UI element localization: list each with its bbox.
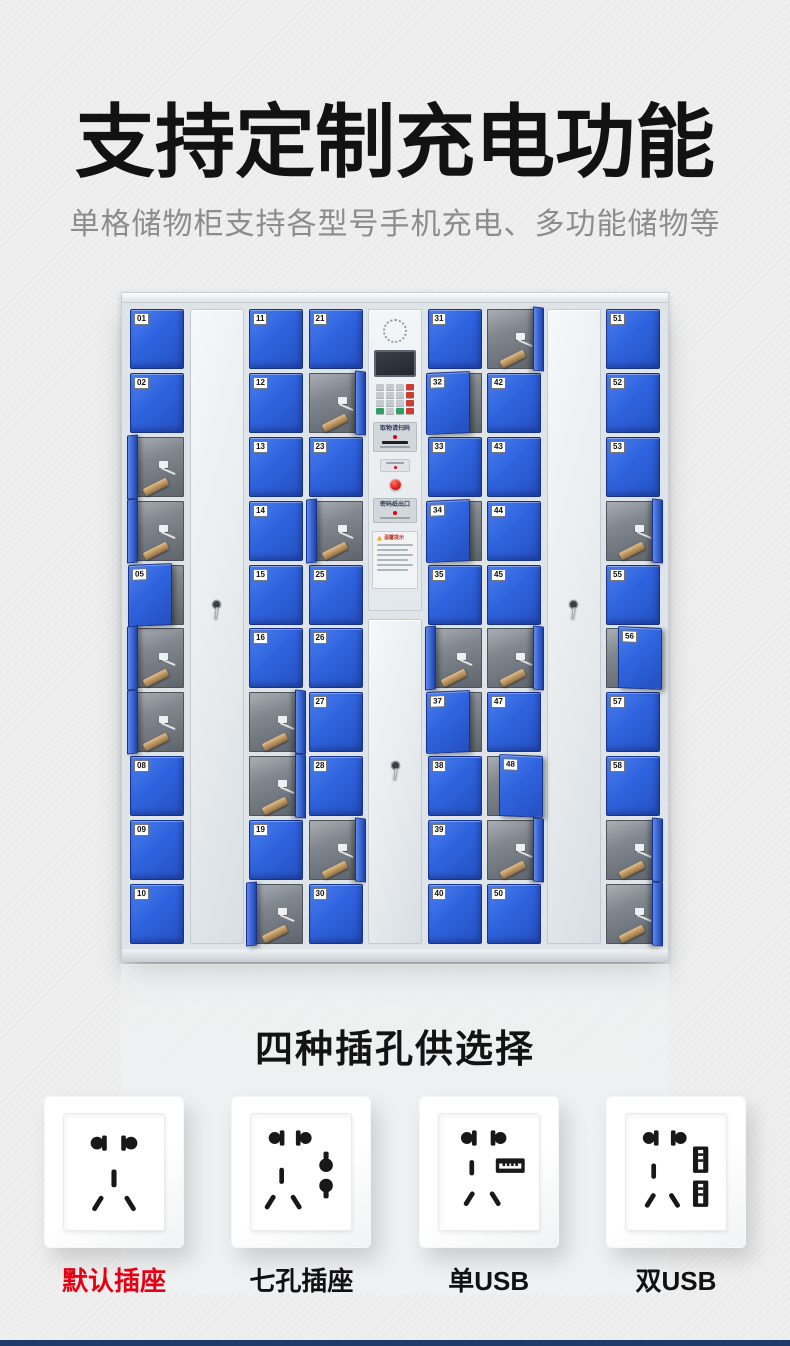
phone: [143, 669, 170, 688]
control-panel: 取物请扫码密码纸出口温馨提示: [368, 309, 422, 611]
phone: [619, 861, 646, 880]
locker-tall-door: [547, 309, 601, 944]
control-panel-column: 取物请扫码密码纸出口温馨提示: [368, 309, 422, 944]
socket-options-section: 四种插孔供选择 默认插座七孔插座单USB双USB: [0, 1028, 790, 1296]
locker-door-open: [652, 881, 663, 946]
fine-print: [386, 462, 404, 464]
locker-door: 10: [130, 884, 184, 944]
locker-door-open: [652, 498, 663, 563]
keypad-key: [406, 400, 414, 406]
locker-cell: 34: [428, 501, 482, 561]
locker-cell: [487, 309, 541, 369]
locker-cell: 31: [428, 309, 482, 369]
locker-cell: [606, 820, 660, 880]
phone: [143, 541, 170, 560]
cell-number-tag: 30: [313, 888, 328, 900]
phone: [500, 861, 527, 880]
cell-number-tag: 56: [622, 631, 637, 644]
cell-number-tag: 53: [610, 441, 625, 453]
cell-number-tag: 48: [503, 758, 518, 771]
socket-label: 单USB: [448, 1266, 529, 1296]
cell-number-tag: 50: [491, 888, 506, 900]
socket-option: 七孔插座: [231, 1096, 371, 1296]
scan-panel-label: 取物请扫码: [380, 426, 410, 433]
locker-cell: 37: [428, 692, 482, 752]
keypad-key: [386, 392, 394, 398]
locker-cell: 01: [130, 309, 184, 369]
locker-cell: [249, 692, 303, 752]
locker-door: 28: [309, 756, 363, 816]
locker-door: 14: [249, 501, 303, 561]
locker-door: 01: [130, 309, 184, 369]
bottom-section-edge: [0, 1340, 790, 1346]
locker-cell: 50: [487, 884, 541, 944]
locker-cell: 21: [309, 309, 363, 369]
cell-number-tag: 33: [432, 441, 447, 453]
phone: [322, 541, 349, 560]
socket-face-seven-hole: [250, 1113, 352, 1231]
locker-cell: [130, 501, 184, 561]
keypad-key: [386, 400, 394, 406]
cell-number-tag: 26: [313, 632, 328, 644]
keypad-key: [406, 408, 414, 414]
locker-cell-interior: [130, 692, 184, 752]
indicator-dot: [393, 435, 397, 439]
locker-cell: [428, 628, 482, 688]
charging-cable: [160, 722, 175, 730]
locker-base: [122, 949, 668, 962]
locker-door-open: [425, 626, 436, 691]
locker-cell: 16: [249, 628, 303, 688]
red-round-button: [390, 479, 401, 490]
socket-option: 单USB: [419, 1096, 559, 1296]
locker-door-open: [295, 690, 306, 755]
cell-number-tag: 09: [134, 824, 149, 836]
locker-cell: [249, 756, 303, 816]
locker-door-open: [127, 434, 138, 499]
locker-column: [190, 309, 244, 944]
fine-print: [377, 544, 413, 546]
locker-cell: 43: [487, 437, 541, 497]
locker-door: 45: [487, 565, 541, 625]
locker-door: 57: [606, 692, 660, 752]
locker-cell: 47: [487, 692, 541, 752]
phone: [500, 350, 527, 369]
cell-number-tag: 21: [313, 313, 328, 325]
charging-cable: [160, 466, 175, 474]
sockets-section-title: 四种插孔供选择: [0, 1028, 790, 1072]
cell-number-tag: 02: [134, 377, 149, 389]
cell-number-tag: 51: [610, 313, 625, 325]
page-subtitle: 单格储物柜支持各型号手机充电、多功能储物等: [0, 208, 790, 242]
cell-number-tag: 14: [253, 505, 268, 517]
socket-label: 双USB: [636, 1266, 717, 1296]
keypad-key: [396, 400, 404, 406]
locker-door: 13: [249, 437, 303, 497]
locker-door-open: [127, 690, 138, 755]
locker-door: 27: [309, 692, 363, 752]
locker-cell: 28: [309, 756, 363, 816]
locker-door-open: [127, 498, 138, 563]
locker-door: 21: [309, 309, 363, 369]
locker-door-open: [533, 626, 544, 691]
socket-label: 七孔插座: [249, 1266, 353, 1296]
notice-sticker: 温馨提示: [372, 531, 418, 589]
locker-door-open: [127, 626, 138, 691]
keypad-key: [406, 392, 414, 398]
locker-cell: 38: [428, 756, 482, 816]
locker-door-open: [533, 306, 544, 371]
phone: [322, 861, 349, 880]
locker-column: 010205080910: [130, 309, 184, 944]
page-title: 支持定制充电功能: [0, 94, 790, 192]
cell-number-tag: 25: [313, 569, 328, 581]
locker-cell: [130, 437, 184, 497]
locker-cell: [606, 501, 660, 561]
code-window: [380, 459, 410, 472]
locker-door: 40: [428, 884, 482, 944]
locker-cell: 45: [487, 565, 541, 625]
scan-panel: 取物请扫码: [373, 422, 417, 452]
password-slip-label: 密码纸出口: [380, 502, 410, 509]
socket-face-five-hole: [63, 1113, 165, 1231]
locker-door-open: [355, 817, 366, 882]
locker-cell: 26: [309, 628, 363, 688]
cell-number-tag: 44: [491, 505, 506, 517]
locker-cell: [130, 692, 184, 752]
locker-door: 26: [309, 628, 363, 688]
locker-cell: 40: [428, 884, 482, 944]
locker-cell: [309, 820, 363, 880]
locker-door: 50: [487, 884, 541, 944]
keyhole-icon: [213, 601, 220, 608]
fine-print: [377, 564, 413, 566]
locker-cell: 11: [249, 309, 303, 369]
cell-number-tag: 55: [610, 569, 625, 581]
locker-door: 51: [606, 309, 660, 369]
locker-cell: 56: [606, 628, 660, 688]
phone: [262, 733, 289, 752]
cell-number-tag: 31: [432, 313, 447, 325]
locker-cell-interior: [130, 501, 184, 561]
keypad-key: [396, 408, 404, 414]
cell-number-tag: 34: [430, 504, 445, 517]
keypad-key: [386, 384, 394, 390]
locker-top-ledge: [122, 293, 668, 303]
locker-cell: 33: [428, 437, 482, 497]
locker-cell: [309, 501, 363, 561]
locker-cell-interior: [130, 628, 184, 688]
locker-door-open: [306, 498, 317, 563]
locker-door-ajar: 34: [426, 499, 470, 563]
locker-door: 23: [309, 437, 363, 497]
center-locker-door: [368, 619, 422, 944]
locker-cell: 42: [487, 373, 541, 433]
locker-cell: 09: [130, 820, 184, 880]
cell-number-tag: 57: [610, 696, 625, 708]
locker-door: 55: [606, 565, 660, 625]
cell-number-tag: 08: [134, 760, 149, 772]
locker-cell: 57: [606, 692, 660, 752]
notice-title: 温馨提示: [384, 535, 404, 541]
phone: [262, 924, 289, 943]
socket-face-single-usb: [438, 1113, 540, 1231]
locker-cell: [606, 884, 660, 944]
speaker-grille-icon: [383, 319, 407, 343]
cell-number-tag: 11: [253, 313, 267, 325]
cell-number-tag: 58: [610, 760, 625, 772]
cell-number-tag: 42: [491, 377, 506, 389]
cell-number-tag: 15: [253, 569, 268, 581]
locker-cell: [309, 373, 363, 433]
locker-cell: 44: [487, 501, 541, 561]
locker-door-open: [533, 817, 544, 882]
keypad: [376, 384, 414, 414]
cell-number-tag: 38: [432, 760, 447, 772]
fine-print: [380, 517, 410, 519]
locker-cell: 19: [249, 820, 303, 880]
fine-print: [377, 569, 408, 571]
cell-number-tag: 52: [610, 377, 625, 389]
locker-door-ajar: 48: [499, 754, 543, 818]
password-slip-panel: 密码纸出口: [373, 498, 417, 523]
phone: [619, 541, 646, 560]
locker-cell: 08: [130, 756, 184, 816]
keypad-key: [386, 408, 394, 414]
locker-cell: 32: [428, 373, 482, 433]
cell-number-tag: 05: [132, 568, 147, 581]
locker-grid: 0102050809101112131415161921232526272830…: [122, 303, 668, 949]
locker-door: 12: [249, 373, 303, 433]
cell-number-tag: 40: [432, 888, 447, 900]
locker-door: 33: [428, 437, 482, 497]
locker-door: 19: [249, 820, 303, 880]
locker-door: 11: [249, 309, 303, 369]
locker-door: 15: [249, 565, 303, 625]
locker-door-ajar: 37: [426, 690, 470, 754]
locker-door: 58: [606, 756, 660, 816]
locker-cell-interior: [249, 884, 303, 944]
warning-icon: [377, 536, 382, 541]
locker-cell: 14: [249, 501, 303, 561]
socket-face-double-usb: [625, 1113, 727, 1231]
locker-cell: 27: [309, 692, 363, 752]
locker-door: 25: [309, 565, 363, 625]
display-screen: [374, 350, 416, 377]
locker-door: 43: [487, 437, 541, 497]
fine-print: [380, 446, 410, 448]
locker-column: 51525355565758: [606, 309, 660, 944]
locker-column: 313233343537383940: [428, 309, 482, 944]
keyhole-icon: [570, 601, 577, 608]
socket-image: [606, 1096, 746, 1248]
keypad-key: [376, 400, 384, 406]
locker-door-open: [355, 370, 366, 435]
locker-cell: 39: [428, 820, 482, 880]
phone: [262, 797, 289, 816]
socket-image: [44, 1096, 184, 1248]
cell-number-tag: 01: [134, 313, 149, 325]
locker-column: 11121314151619: [249, 309, 303, 944]
cell-number-tag: 13: [253, 441, 268, 453]
cell-number-tag: 43: [491, 441, 506, 453]
locker-column: 42434445474850: [487, 309, 541, 944]
locker-cell: 55: [606, 565, 660, 625]
locker-cell: 15: [249, 565, 303, 625]
indicator-dot: [394, 466, 397, 469]
charging-cable: [279, 914, 294, 922]
key-icon: [571, 607, 576, 619]
locker-cell: 12: [249, 373, 303, 433]
locker-door-open: [246, 881, 257, 946]
locker-door-ajar: 32: [426, 371, 470, 435]
locker-door: 08: [130, 756, 184, 816]
locker-cabinet: 0102050809101112131415161921232526272830…: [121, 292, 669, 962]
cell-number-tag: 37: [430, 695, 445, 708]
cell-number-tag: 27: [313, 696, 328, 708]
cell-number-tag: 19: [253, 824, 268, 836]
socket-option: 默认插座: [44, 1096, 184, 1296]
key-icon: [393, 768, 398, 780]
cell-number-tag: 35: [432, 569, 447, 581]
locker-door: 42: [487, 373, 541, 433]
socket-image: [419, 1096, 559, 1248]
locker-cell: 52: [606, 373, 660, 433]
locker-cell: [249, 884, 303, 944]
locker-cell: 25: [309, 565, 363, 625]
keypad-key: [396, 392, 404, 398]
locker-cell: 10: [130, 884, 184, 944]
locker-door: 30: [309, 884, 363, 944]
keypad-key: [376, 384, 384, 390]
phone: [500, 669, 527, 688]
phone: [143, 477, 170, 496]
keypad-key: [376, 392, 384, 398]
locker-cell: 13: [249, 437, 303, 497]
locker-column: 21232526272830: [309, 309, 363, 944]
locker-door: 44: [487, 501, 541, 561]
locker-door: 02: [130, 373, 184, 433]
cell-number-tag: 10: [134, 888, 149, 900]
locker-cell: 51: [606, 309, 660, 369]
keypad-key: [396, 384, 404, 390]
fine-print: [377, 559, 408, 561]
page: 支持定制充电功能 单格储物柜支持各型号手机充电、多功能储物等 010205080…: [0, 0, 790, 1346]
cell-number-tag: 23: [313, 441, 328, 453]
socket-row: 默认插座七孔插座单USB双USB: [0, 1096, 790, 1296]
cell-number-tag: 47: [491, 696, 506, 708]
locker-door-open: [652, 817, 663, 882]
socket-label: 默认插座: [62, 1266, 166, 1296]
locker-door-ajar: 56: [618, 626, 662, 690]
locker-cell: 48: [487, 756, 541, 816]
cell-number-tag: 32: [430, 376, 445, 389]
locker-column: [547, 309, 601, 944]
phone: [322, 413, 349, 432]
keypad-key: [376, 408, 384, 414]
locker-door: 39: [428, 820, 482, 880]
charging-cable: [636, 914, 651, 922]
keypad-key: [406, 384, 414, 390]
charging-cable: [517, 850, 532, 858]
locker-door: 35: [428, 565, 482, 625]
locker-cell: 30: [309, 884, 363, 944]
locker-door: 47: [487, 692, 541, 752]
locker-door: 16: [249, 628, 303, 688]
cell-number-tag: 28: [313, 760, 328, 772]
charging-cable: [279, 722, 294, 730]
phone: [441, 669, 468, 688]
locker-cell: [487, 820, 541, 880]
phone: [619, 924, 646, 943]
locker-product-image: 0102050809101112131415161921232526272830…: [0, 292, 790, 962]
locker-cell: 23: [309, 437, 363, 497]
locker-door: 52: [606, 373, 660, 433]
cell-number-tag: 39: [432, 824, 447, 836]
charging-cable: [517, 339, 532, 347]
locker-door: 09: [130, 820, 184, 880]
locker-door: 38: [428, 756, 482, 816]
scanner-slot: [382, 441, 408, 444]
locker-cell: 53: [606, 437, 660, 497]
charging-cable: [636, 850, 651, 858]
socket-image: [231, 1096, 371, 1248]
notice-header: 温馨提示: [377, 535, 404, 541]
key-icon: [214, 607, 219, 619]
fine-print: [377, 549, 408, 551]
locker-door: 53: [606, 437, 660, 497]
fine-print: [377, 554, 413, 556]
indicator-dot: [393, 511, 397, 515]
locker-cell: 35: [428, 565, 482, 625]
charging-cable: [279, 786, 294, 794]
locker-door-open: [295, 754, 306, 819]
cell-number-tag: 45: [491, 569, 506, 581]
keyhole-icon: [392, 762, 399, 769]
socket-option: 双USB: [606, 1096, 746, 1296]
cell-number-tag: 12: [253, 377, 268, 389]
locker-cell: [130, 628, 184, 688]
locker-cell: 05: [130, 565, 184, 625]
locker-cell: [487, 628, 541, 688]
locker-cell-interior: [130, 437, 184, 497]
phone: [143, 733, 170, 752]
locker-tall-door: [190, 309, 244, 944]
header: 支持定制充电功能 单格储物柜支持各型号手机充电、多功能储物等: [0, 0, 790, 242]
locker-door-ajar: 05: [128, 563, 172, 627]
locker-cell: 58: [606, 756, 660, 816]
cell-number-tag: 16: [253, 632, 268, 644]
locker-cell: 02: [130, 373, 184, 433]
locker-door: 31: [428, 309, 482, 369]
